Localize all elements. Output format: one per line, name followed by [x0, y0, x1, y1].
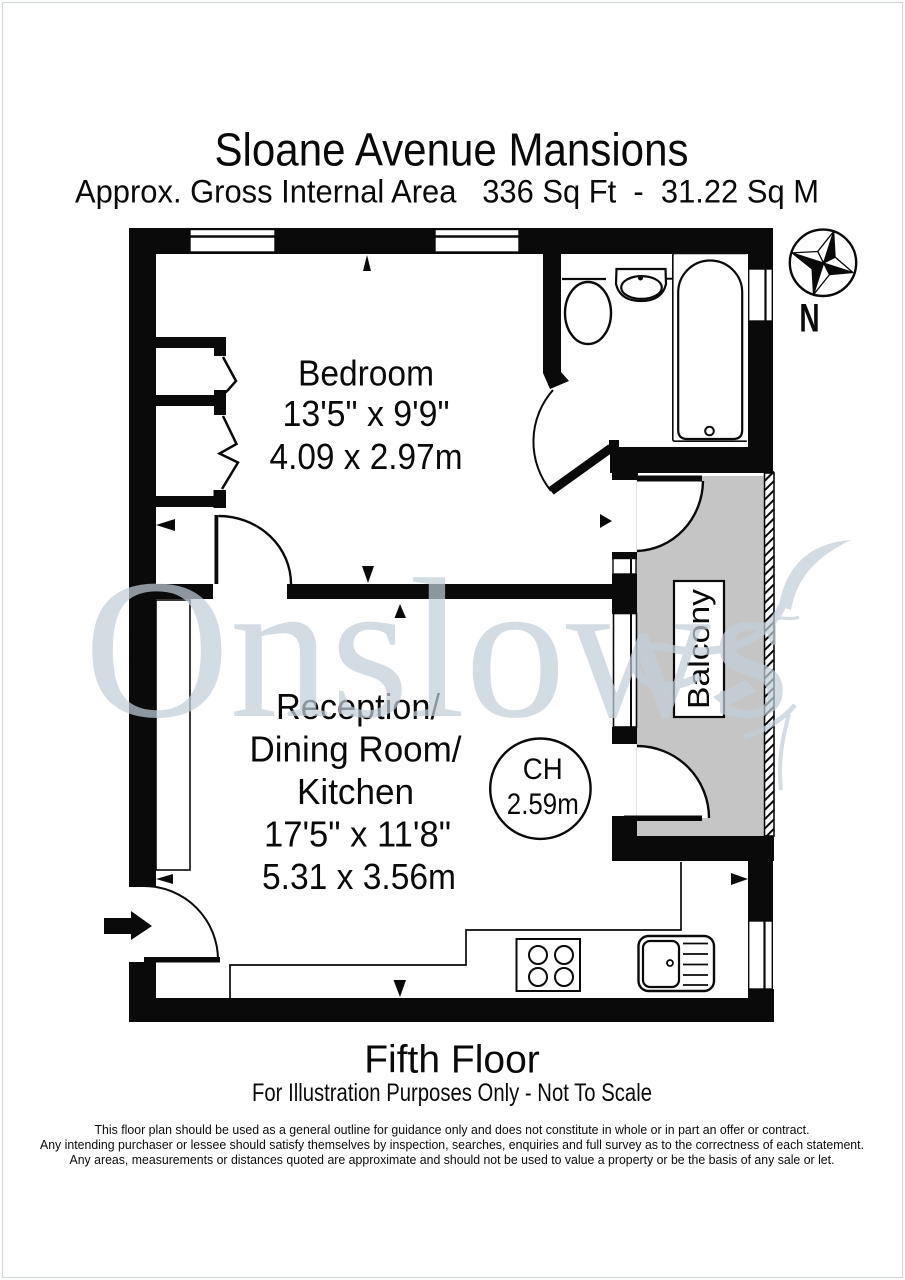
svg-text:Approx. Gross Internal Area: Approx. Gross Internal Area 336 Sq Ft - … [75, 174, 819, 210]
svg-text:Sloane Avenue Mansions: Sloane Avenue Mansions [215, 124, 689, 176]
svg-text:For Illustration Purposes Only: For Illustration Purposes Only - Not To … [252, 1079, 652, 1107]
svg-text:5.31 x 3.56m: 5.31 x 3.56m [262, 856, 456, 897]
svg-text:This floor plan should be used: This floor plan should be used as a gene… [95, 1122, 810, 1137]
svg-text:4.09 x 2.97m: 4.09 x 2.97m [270, 436, 463, 477]
svg-text:Any intending purchaser or les: Any intending purchaser or lessee should… [40, 1137, 864, 1152]
svg-text:N: N [799, 297, 819, 341]
svg-text:Kitchen: Kitchen [297, 771, 414, 812]
svg-text:Bedroom: Bedroom [298, 353, 434, 394]
svg-text:17'5" x 11'8": 17'5" x 11'8" [264, 814, 451, 855]
svg-text:Any areas, measurements or dis: Any areas, measurements or distances quo… [70, 1152, 835, 1167]
svg-text:Fifth Floor: Fifth Floor [364, 1039, 540, 1082]
svg-text:2.59m: 2.59m [507, 788, 579, 821]
svg-text:13'5" x 9'9": 13'5" x 9'9" [283, 393, 450, 434]
